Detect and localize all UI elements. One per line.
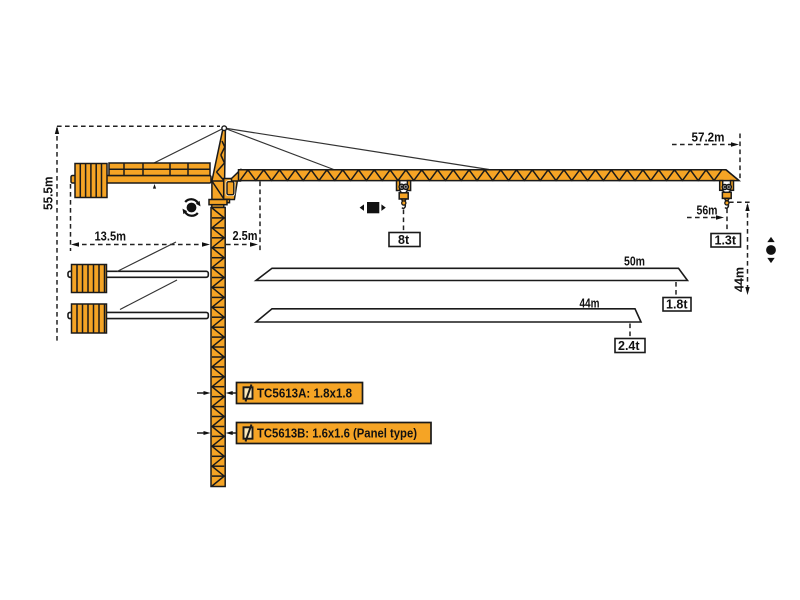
svg-text:8t: 8t (398, 233, 410, 247)
svg-text:2.4t: 2.4t (618, 339, 640, 353)
svg-text:44m: 44m (733, 267, 747, 292)
svg-text:56m: 56m (697, 203, 718, 217)
svg-text:55.5m: 55.5m (42, 177, 56, 211)
svg-text:TC5613B: 1.6x1.6 (Panel type): TC5613B: 1.6x1.6 (Panel type) (257, 427, 417, 441)
svg-text:TC5613A: 1.8x1.8: TC5613A: 1.8x1.8 (257, 387, 352, 401)
svg-text:1.3t: 1.3t (715, 234, 737, 248)
svg-text:2.5m: 2.5m (233, 229, 258, 243)
svg-text:1.8t: 1.8t (666, 298, 688, 312)
svg-text:13.5m: 13.5m (95, 230, 127, 244)
svg-text:50m: 50m (624, 254, 645, 268)
svg-text:57.2m: 57.2m (692, 131, 725, 145)
svg-text:44m: 44m (580, 296, 600, 310)
